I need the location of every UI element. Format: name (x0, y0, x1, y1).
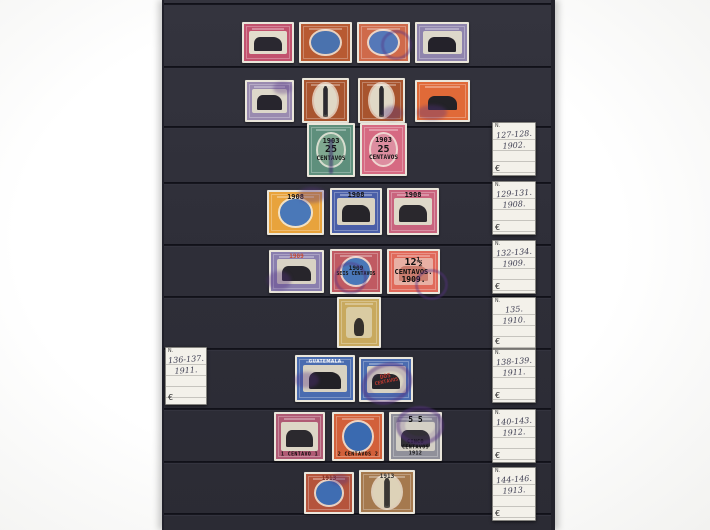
label-number-header: N. (495, 469, 500, 474)
stamp-frame (304, 80, 347, 121)
stamp-r9c1-1913: 1913 (304, 472, 354, 514)
stamp-r5c3-1909-12half: 12½CENTAVOS.1909. (387, 249, 440, 294)
stamp-frame (271, 252, 322, 291)
stamp-r7c2-1911: DOSCENTAVOS (359, 357, 413, 402)
stamp-frame (389, 190, 437, 233)
stamp-r4c1-1908: 1908 (267, 190, 324, 235)
stamp-vignette (373, 476, 401, 509)
stamp-frame (362, 125, 405, 174)
stamp-vignette (337, 198, 374, 226)
stamp-r8c1-1912: 1 CENTAVO 1 (274, 412, 325, 461)
label-number-header: N. (495, 124, 500, 129)
stamp-r8c2-1912: 2 CENTAVOS 2 (332, 412, 384, 461)
stamp-vignette-detail (342, 205, 370, 222)
stamp-vignette-detail (380, 86, 383, 114)
label-1911: N.138-139.1911.€ (492, 349, 536, 403)
stamp-vignette-detail (385, 478, 389, 506)
stamp-vignette-detail (257, 95, 283, 110)
stamp-vignette (423, 31, 462, 55)
label-1913: N.144-146.1913.€ (492, 467, 536, 521)
label-number-header: N. (495, 299, 500, 304)
stamp-r2c3 (358, 78, 405, 123)
stamp-r1c3 (357, 22, 410, 63)
stamp-vignette-detail (399, 266, 427, 282)
stamp-surcharge-banner: 1 CENTAVO 1 (279, 452, 321, 458)
label-1911-left: N.136-137.1911.€ (165, 347, 207, 405)
stamp-vignette (423, 89, 463, 113)
stamp-vignette (314, 84, 337, 118)
stamp-frame (339, 299, 379, 346)
label-number-header: N. (495, 411, 500, 416)
label-number-header: N. (495, 351, 500, 356)
label-1912: N.140-143.1912.€ (492, 409, 536, 463)
stamp-r9c2-1913: 1913 (359, 470, 415, 514)
pocket-seam-2 (164, 66, 551, 69)
stamp-frame (309, 125, 353, 175)
stamp-r4c2-1908: 1908 (330, 188, 382, 235)
stamp-vignette (318, 134, 344, 166)
stamp-r1c1 (242, 22, 294, 63)
label-euro-sign: € (495, 223, 500, 232)
stamp-frame (361, 359, 411, 400)
stamp-vignette (346, 307, 372, 338)
stamp-vignette (344, 422, 372, 451)
stamp-vignette (370, 84, 393, 118)
stamp-vignette-detail (399, 205, 427, 222)
stamp-frame (332, 251, 380, 292)
stamp-vignette-detail (309, 372, 341, 389)
stamp-r5c2-1909: 1909SEIS CENTAVOS (330, 249, 382, 294)
label-1908: N.129-131.1908.€ (492, 181, 536, 235)
stamp-vignette (371, 134, 396, 165)
stamp-r5c1-1909: 1909 (269, 250, 324, 293)
stamp-r3c2-1903-25c: 190325CENTAVOS (360, 123, 407, 176)
stamp-vignette (394, 258, 432, 284)
stamp-frame (417, 82, 468, 120)
stamp-vignette (367, 366, 406, 392)
stamp-frame (360, 80, 403, 121)
stamp-vignette-detail (354, 318, 365, 336)
stamp-vignette-detail (254, 37, 282, 51)
label-1902: N.127-128.1902.€ (492, 122, 536, 176)
stamp-vignette (303, 365, 347, 393)
stamp-vignette-detail (428, 37, 457, 51)
label-1910: N.135.1910.€ (492, 297, 536, 349)
stamp-surcharge-banner: 2 CENTAVOS 2 (337, 452, 380, 458)
stamp-vignette-detail (324, 86, 327, 114)
stamp-r1c2 (299, 22, 352, 63)
stamp-vignette (281, 422, 318, 451)
stamp-frame: GUATEMALA (297, 357, 353, 400)
label-number-header: N. (495, 183, 500, 188)
stamp-r2c1 (245, 80, 294, 122)
stamp-frame (301, 24, 350, 61)
stamp-frame (361, 472, 413, 512)
stamp-r8c3-1912: 5 5CINCO CENTAVOS 1912 (389, 412, 442, 461)
stamp-vignette (311, 31, 339, 55)
stamp-vignette (394, 198, 431, 226)
label-euro-sign: € (495, 282, 500, 291)
stamp-vignette-detail (286, 430, 313, 447)
stamp-frame (244, 24, 292, 61)
label-euro-sign: € (495, 391, 500, 400)
stamp-frame (306, 474, 352, 512)
stamp-album-photo: 190325CENTAVOS190325CENTAVOS190819081908… (0, 0, 710, 530)
pocket-seam-1 (164, 3, 551, 6)
label-euro-sign: € (495, 509, 500, 518)
stamp-vignette-detail (282, 266, 311, 281)
stamp-vignette-detail (428, 96, 457, 111)
stamp-vignette (249, 31, 286, 55)
stamp-r6c1-1910 (337, 297, 381, 348)
stamp-vignette (252, 89, 287, 113)
stamp-surcharge-banner: CINCO CENTAVOS 1912 (394, 439, 437, 456)
stamp-r7c1-1911: GUATEMALA (295, 355, 355, 402)
stamp-vignette (277, 259, 317, 284)
stamp-vignette (316, 481, 343, 505)
label-number-header: N. (168, 349, 173, 354)
stamp-frame (417, 24, 467, 61)
stamp-r1c4 (415, 22, 469, 63)
stamp-frame (332, 190, 380, 233)
stamp-r4c3-1908: 1908 (387, 188, 439, 235)
stamp-r2c2 (302, 78, 349, 123)
label-1909: N.132-134.1909.€ (492, 240, 536, 294)
stamp-frame (359, 24, 408, 61)
stamp-vignette (280, 199, 311, 225)
stamp-frame (247, 82, 292, 120)
label-euro-sign: € (168, 393, 173, 402)
stamp-vignette (342, 258, 370, 284)
label-euro-sign: € (495, 451, 500, 460)
label-number-header: N. (495, 242, 500, 247)
stamp-r2c4 (415, 80, 470, 122)
stamp-vignette (369, 31, 397, 55)
label-euro-sign: € (495, 337, 500, 346)
label-euro-sign: € (495, 164, 500, 173)
stamp-frame (389, 251, 438, 292)
stamp-vignette-detail (372, 374, 401, 390)
stamp-country-text: GUATEMALA (305, 360, 345, 364)
stamp-frame (269, 192, 322, 233)
stamp-r3c1-1903-25c: 190325CENTAVOS (307, 123, 355, 177)
